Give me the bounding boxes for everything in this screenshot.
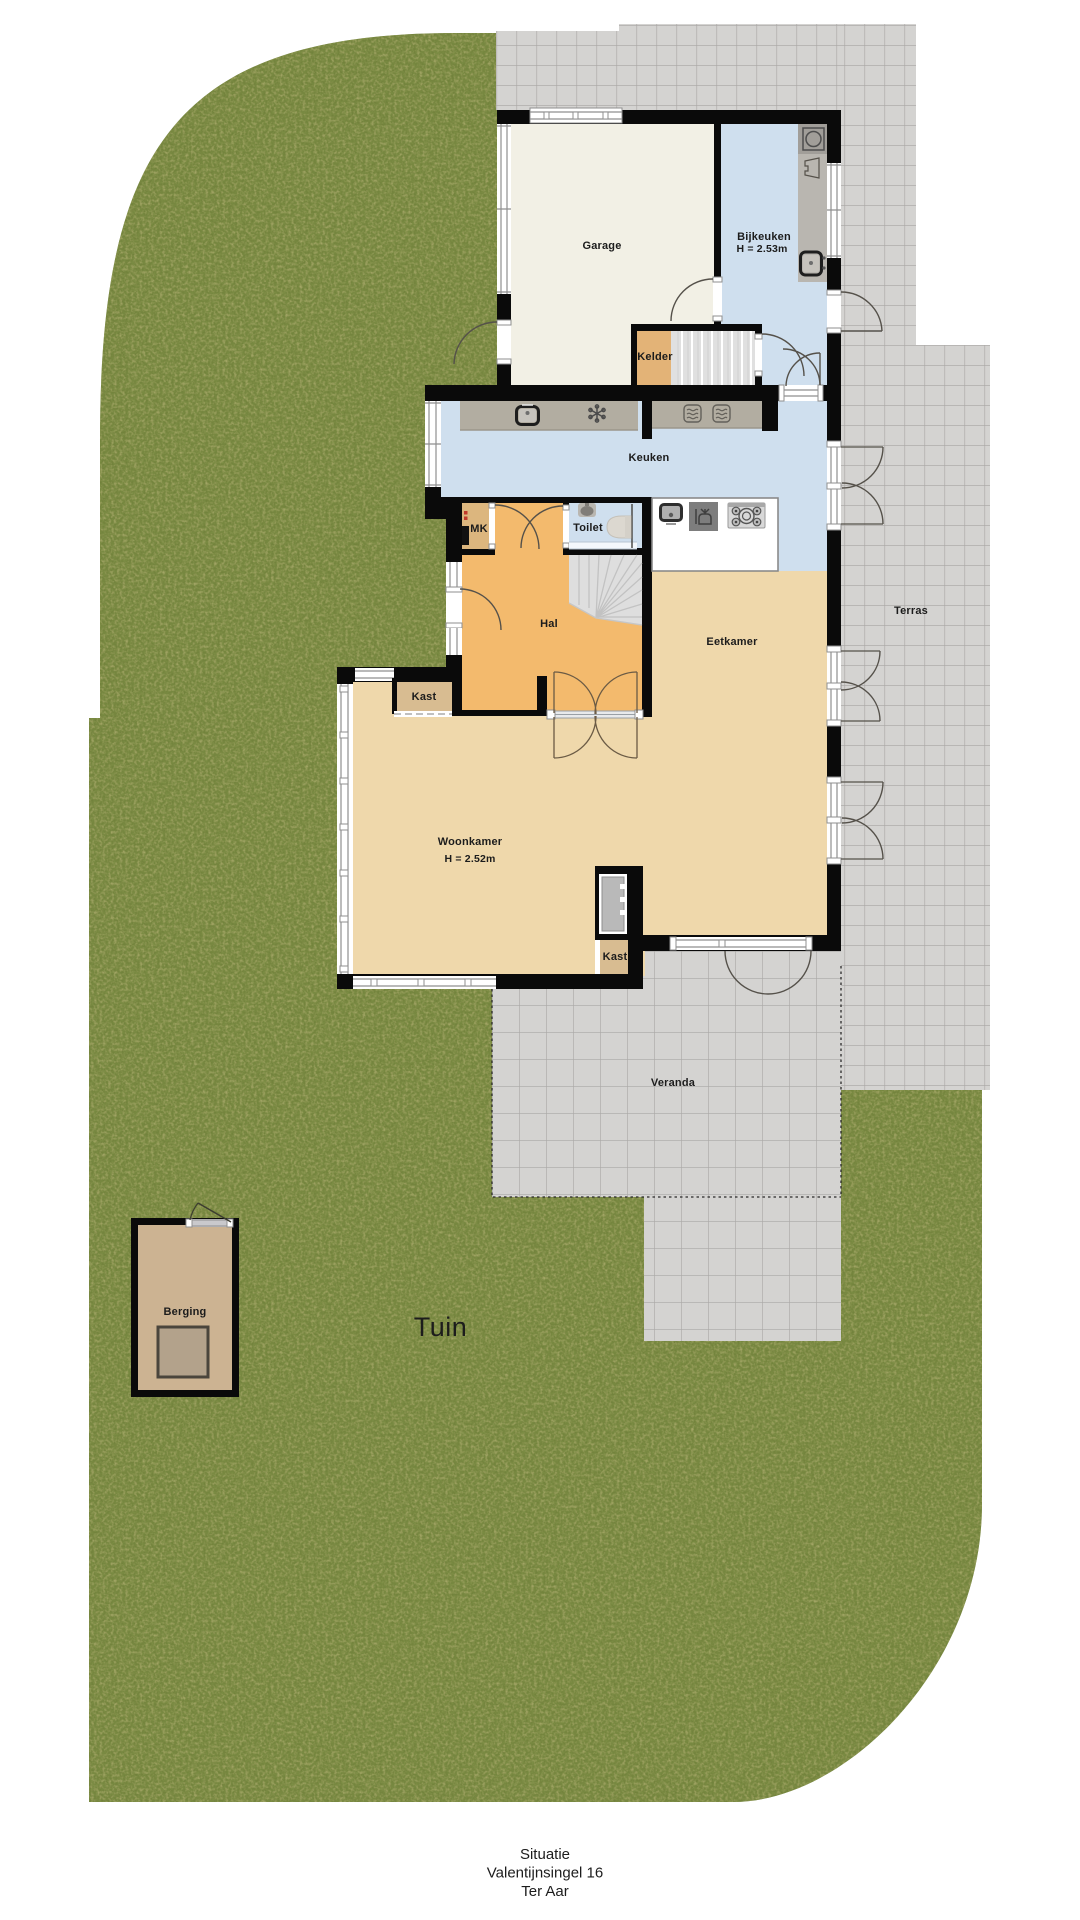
svg-text:Woonkamer: Woonkamer	[438, 836, 503, 848]
svg-text:Garage: Garage	[582, 240, 621, 252]
svg-text:Situatie: Situatie	[520, 1846, 570, 1863]
svg-text:Veranda: Veranda	[651, 1077, 696, 1089]
svg-text:Ter Aar: Ter Aar	[521, 1883, 569, 1900]
svg-text:H = 2.52m: H = 2.52m	[444, 853, 495, 865]
svg-text:Hal: Hal	[540, 618, 558, 630]
svg-text:Kast: Kast	[412, 691, 437, 703]
svg-text:MK: MK	[470, 523, 488, 535]
svg-text:H = 2.53m: H = 2.53m	[736, 243, 787, 255]
svg-text:Berging: Berging	[164, 1306, 207, 1318]
svg-text:Toilet: Toilet	[573, 522, 603, 534]
svg-text:Valentijnsingel 16: Valentijnsingel 16	[487, 1865, 603, 1882]
svg-text:Tuin: Tuin	[414, 1312, 468, 1342]
svg-text:Bijkeuken: Bijkeuken	[737, 231, 791, 243]
svg-text:Keuken: Keuken	[629, 452, 670, 464]
svg-text:Kast: Kast	[603, 951, 628, 963]
svg-text:Terras: Terras	[894, 605, 928, 617]
svg-text:Kelder: Kelder	[637, 351, 673, 363]
svg-text:Eetkamer: Eetkamer	[706, 636, 758, 648]
